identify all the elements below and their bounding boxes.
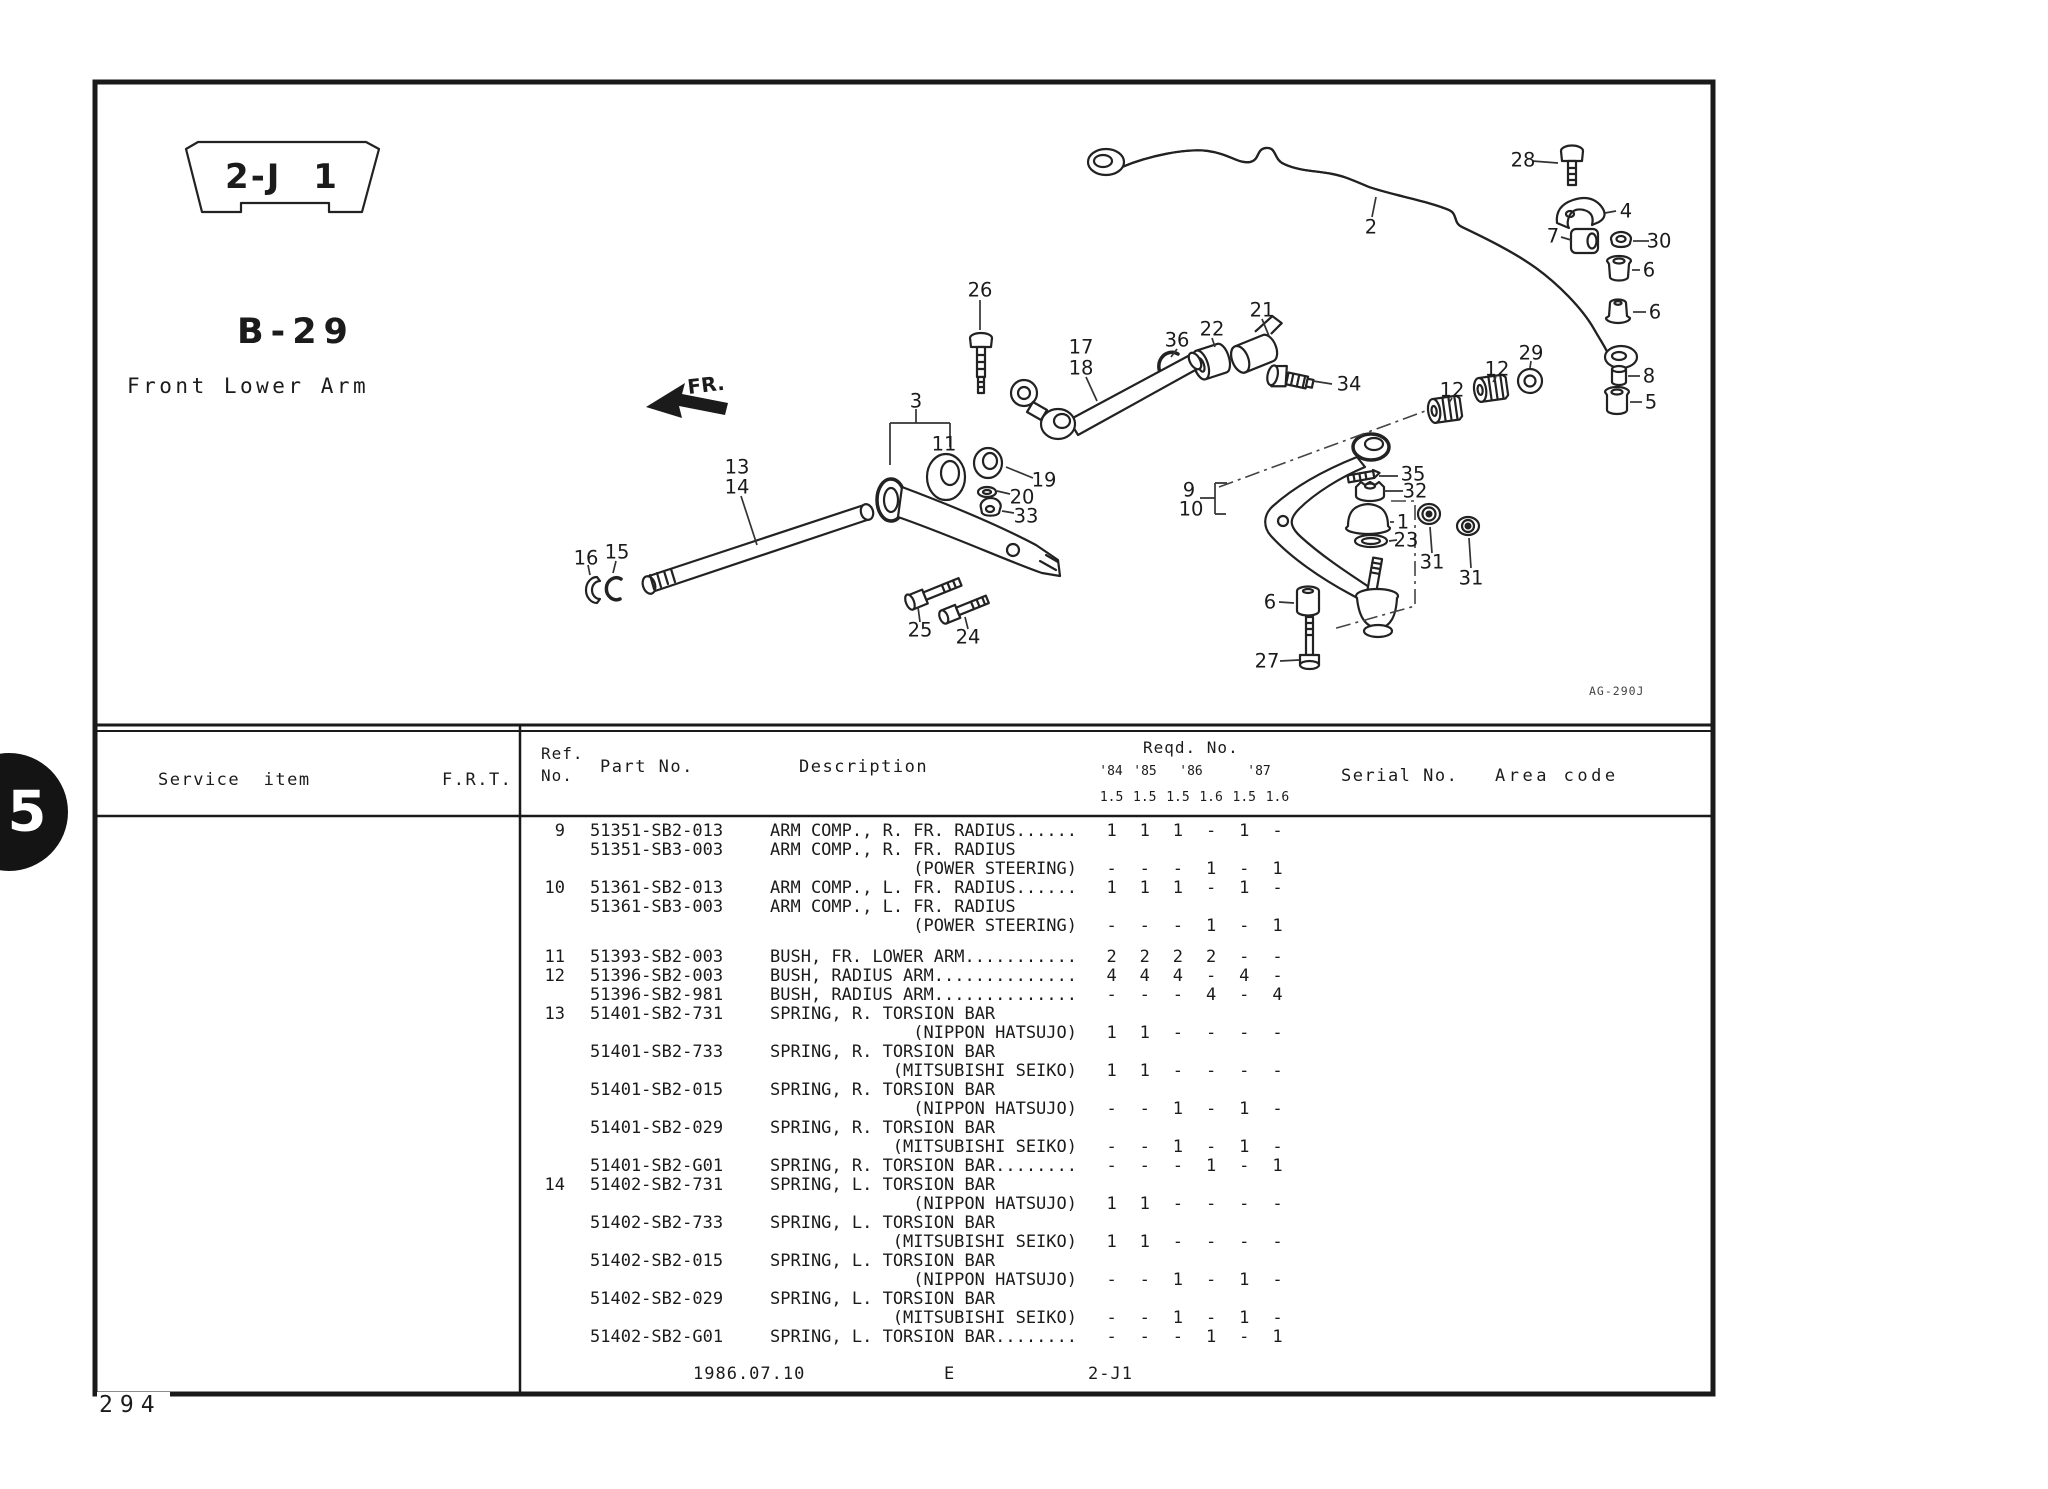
qty-cell: 1 [1161,1138,1194,1157]
lower-arm-right-drawing [1265,434,1479,669]
qty-cell: - [1261,1195,1294,1214]
part-no-cell: 51361-SB3-003 [590,898,723,917]
qty-cell: 1 [1161,1309,1194,1328]
table-row: (MITSUBISHI SEIKO)--1-1- [0,1309,2048,1328]
qty-cells: --1-1- [1095,1100,1294,1119]
part-no-cell: 51401-SB2-029 [590,1119,723,1138]
part-callout-31: 31 [1459,567,1484,590]
part-callout-32: 32 [1403,480,1428,503]
qty-cell: - [1128,986,1161,1005]
part-callout-11: 11 [932,433,957,456]
qty-cell: - [1195,967,1228,986]
description-cell: BUSH, RADIUS ARM.............. [770,986,1077,1005]
table-row: 51396-SB2-981BUSH, RADIUS ARM...........… [0,986,2048,1005]
table-row: 51401-SB2-015SPRING, R. TORSION BAR [0,1081,2048,1100]
ref-no-cell: 12 [495,967,565,986]
qty-cell: - [1161,986,1194,1005]
qty-cells: 2222-- [1095,948,1294,967]
qty-cell: 4 [1261,986,1294,1005]
footer-edition-code: E [944,1364,955,1384]
description-cell: ARM COMP., R. FR. RADIUS...... [770,822,1077,841]
qty-cell: 2 [1128,948,1161,967]
engine-header: 1.5 [1161,790,1194,805]
qty-cell: 2 [1195,948,1228,967]
part-callout-33: 33 [1014,505,1039,528]
part-no-cell: 51402-SB2-731 [590,1176,723,1195]
part-callout-22: 22 [1200,318,1225,341]
year-header-87: '87 [1247,764,1270,779]
qty-cell: - [1261,1309,1294,1328]
part-no-cell: 51402-SB2-733 [590,1214,723,1233]
fr-direction-label: FR. [686,371,726,399]
part-no-cell: 51401-SB2-731 [590,1005,723,1024]
table-row: 1051361-SB2-013ARM COMP., L. FR. RADIUS.… [0,879,2048,898]
qty-cell: - [1195,1195,1228,1214]
part-callout-15: 15 [605,541,630,564]
col-header-area-code: Area code [1495,766,1619,786]
qty-cell: 1 [1228,1138,1261,1157]
part-callout-14: 14 [725,476,750,499]
table-row: 51402-SB2-G01SPRING, L. TORSION BAR.....… [0,1328,2048,1347]
qty-cell: 1 [1128,1024,1161,1043]
qty-cell: 1 [1128,1233,1161,1252]
part-callout-5: 5 [1645,391,1657,414]
col-header-serial-no: Serial No. [1341,766,1458,786]
year-header-84: '84 [1099,764,1122,779]
qty-cell: - [1195,1309,1228,1328]
qty-cell: - [1095,860,1128,879]
qty-cell: 1 [1095,879,1128,898]
part-no-cell: 51401-SB2-733 [590,1043,723,1062]
description-cell: (NIPPON HATSUJO) [770,1195,1077,1214]
part-callout-34: 34 [1337,373,1362,396]
qty-cell: - [1228,1328,1261,1347]
qty-cells: 11---- [1095,1062,1294,1081]
table-row: 51401-SB2-G01SPRING, R. TORSION BAR.....… [0,1157,2048,1176]
qty-cell: - [1095,1157,1128,1176]
description-cell: SPRING, R. TORSION BAR [770,1081,1077,1100]
engine-header: 1.5 [1128,790,1161,805]
qty-cells: ---1-1 [1095,1328,1294,1347]
qty-cell: - [1195,1233,1228,1252]
qty-cell: 1 [1228,879,1261,898]
qty-cell: 1 [1095,1195,1128,1214]
qty-cell: 1 [1195,1328,1228,1347]
section-badge-label: 2-J 1 [225,157,339,197]
part-callout-8: 8 [1643,365,1655,388]
qty-cell: 1 [1095,1233,1128,1252]
qty-cell: - [1195,822,1228,841]
part-callout-28: 28 [1511,149,1536,172]
part-no-cell: 51351-SB3-003 [590,841,723,860]
qty-cell: 1 [1095,822,1128,841]
part-no-cell: 51361-SB2-013 [590,879,723,898]
qty-cell: - [1128,1157,1161,1176]
page-number: 294 [97,1392,170,1418]
description-cell: (NIPPON HATSUJO) [770,1024,1077,1043]
qty-cells: 111-1- [1095,879,1294,898]
qty-cell: - [1261,967,1294,986]
description-cell: SPRING, R. TORSION BAR [770,1119,1077,1138]
qty-cell: 1 [1095,1062,1128,1081]
qty-cells: 111-1- [1095,822,1294,841]
qty-cell: - [1195,1138,1228,1157]
engine-header: 1.6 [1195,790,1228,805]
table-row: (NIPPON HATSUJO)--1-1- [0,1100,2048,1119]
part-no-cell: 51396-SB2-981 [590,986,723,1005]
table-row: 51361-SB3-003ARM COMP., L. FR. RADIUS [0,898,2048,917]
qty-cell: - [1195,1024,1228,1043]
qty-cell: - [1228,986,1261,1005]
stabilizer-mount-parts-drawing [1557,146,1631,415]
part-callout-18: 18 [1069,357,1094,380]
col-header-part-no: Part No. [600,757,694,777]
qty-cell: 4 [1195,986,1228,1005]
part-callout-10: 10 [1179,498,1204,521]
table-row: (MITSUBISHI SEIKO)--1-1- [0,1138,2048,1157]
qty-cell: - [1261,1138,1294,1157]
qty-cell: - [1195,879,1228,898]
qty-cells: ---1-1 [1095,917,1294,936]
description-cell: SPRING, L. TORSION BAR [770,1214,1077,1233]
qty-cell: - [1095,1271,1128,1290]
qty-cell: 1 [1128,1062,1161,1081]
part-callout-30: 30 [1647,230,1672,253]
qty-cell: 4 [1095,967,1128,986]
qty-cell: 1 [1128,879,1161,898]
table-row: (NIPPON HATSUJO)11---- [0,1195,2048,1214]
table-row: 51351-SB3-003ARM COMP., R. FR. RADIUS [0,841,2048,860]
qty-cell: - [1161,1195,1194,1214]
engine-header: 1.5 [1095,790,1128,805]
qty-cell: - [1095,1138,1128,1157]
part-callout-6: 6 [1643,259,1655,282]
qty-cell: - [1161,1157,1194,1176]
qty-cell: 1 [1261,1328,1294,1347]
description-cell: (POWER STEERING) [770,860,1077,879]
table-row: (MITSUBISHI SEIKO)11---- [0,1233,2048,1252]
qty-cell: 4 [1128,967,1161,986]
qty-cell: - [1228,1062,1261,1081]
engine-header: 1.5 [1228,790,1261,805]
ref-no-cell: 10 [495,879,565,898]
qty-cell: - [1228,1195,1261,1214]
qty-cell: - [1261,1024,1294,1043]
qty-cell: - [1128,1309,1161,1328]
part-callout-21: 21 [1250,299,1275,322]
description-cell: SPRING, R. TORSION BAR........ [770,1157,1077,1176]
part-callout-27: 27 [1255,650,1280,673]
part-callout-12: 12 [1440,379,1465,402]
description-cell: (MITSUBISHI SEIKO) [770,1062,1077,1081]
qty-cell: 1 [1128,1195,1161,1214]
radius-rod-right-drawing [1011,351,1204,439]
description-cell: (MITSUBISHI SEIKO) [770,1138,1077,1157]
part-callout-25: 25 [908,619,933,642]
qty-cell: - [1261,948,1294,967]
part-callout-26: 26 [968,279,993,302]
qty-cell: - [1095,1309,1128,1328]
description-cell: SPRING, L. TORSION BAR [770,1252,1077,1271]
part-no-cell: 51396-SB2-003 [590,967,723,986]
qty-cell: - [1195,1100,1228,1119]
qty-cell: 1 [1228,1271,1261,1290]
ref-no-cell: 14 [495,1176,565,1195]
part-callout-6: 6 [1264,591,1276,614]
description-cell: ARM COMP., R. FR. RADIUS [770,841,1077,860]
table-row: (NIPPON HATSUJO)--1-1- [0,1271,2048,1290]
part-callout-16: 16 [574,547,599,570]
table-row: (NIPPON HATSUJO)11---- [0,1024,2048,1043]
part-no-cell: 51402-SB2-G01 [590,1328,723,1347]
part-callout-31: 31 [1420,551,1445,574]
part-callout-6: 6 [1649,301,1661,324]
year-header-86: '86 [1179,764,1202,779]
section-tab-number: 5 [8,780,47,845]
qty-cell: 1 [1195,1157,1228,1176]
qty-cell: - [1095,1328,1128,1347]
qty-cell: - [1095,1100,1128,1119]
qty-cells: 444-4- [1095,967,1294,986]
col-header-reqd-no: Reqd. No. [1143,738,1239,757]
footer-date: 1986.07.10 [693,1364,805,1384]
description-cell: SPRING, R. TORSION BAR [770,1043,1077,1062]
qty-cell: - [1128,917,1161,936]
table-row: 51402-SB2-733SPRING, L. TORSION BAR [0,1214,2048,1233]
qty-cell: - [1128,1100,1161,1119]
qty-cell: - [1195,1271,1228,1290]
table-row: 1451402-SB2-731SPRING, L. TORSION BAR [0,1176,2048,1195]
part-no-cell: 51351-SB2-013 [590,822,723,841]
qty-cells: 11---- [1095,1195,1294,1214]
drawing-reference: AG-290J [1589,684,1644,698]
qty-cell: - [1261,879,1294,898]
qty-cell: - [1161,1328,1194,1347]
qty-cell: - [1128,1271,1161,1290]
qty-cells: --1-1- [1095,1271,1294,1290]
ref-no-cell: 13 [495,1005,565,1024]
part-callout-17: 17 [1069,336,1094,359]
qty-cell: - [1095,986,1128,1005]
table-row: 1151393-SB2-003BUSH, FR. LOWER ARM......… [0,948,2048,967]
qty-cell: 4 [1228,967,1261,986]
qty-cell: - [1228,1233,1261,1252]
qty-cell: 1 [1195,860,1228,879]
catalog-code: B-29 [237,312,355,352]
qty-cell: 1 [1228,1100,1261,1119]
qty-cell: 1 [1261,860,1294,879]
qty-cells: ---1-1 [1095,1157,1294,1176]
part-callout-3: 3 [910,390,922,413]
qty-cell: - [1161,860,1194,879]
qty-cell: - [1128,860,1161,879]
part-callout-29: 29 [1519,342,1544,365]
year-header-85: '85 [1133,764,1156,779]
col-header-frt: F.R.T. [442,770,512,790]
table-row: 51402-SB2-015SPRING, L. TORSION BAR [0,1252,2048,1271]
qty-cell: 1 [1228,822,1261,841]
part-callout-23: 23 [1394,529,1419,552]
qty-cell: - [1128,1328,1161,1347]
qty-cells: --1-1- [1095,1309,1294,1328]
qty-cell: 1 [1095,1024,1128,1043]
qty-cell: 1 [1161,879,1194,898]
qty-cell: - [1195,1062,1228,1081]
part-callout-24: 24 [956,626,981,649]
page-title: Front Lower Arm [127,374,369,398]
qty-cell: - [1128,1138,1161,1157]
radius-arm-holder-drawing [1159,314,1315,395]
ref-no-cell: 11 [495,948,565,967]
bolt-26-drawing [970,333,992,393]
qty-cell: - [1261,1100,1294,1119]
table-row: (POWER STEERING)---1-1 [0,860,2048,879]
part-no-cell: 51393-SB2-003 [590,948,723,967]
table-row: 51402-SB2-029SPRING, L. TORSION BAR [0,1290,2048,1309]
qty-cells: ---4-4 [1095,986,1294,1005]
qty-cell: - [1161,1062,1194,1081]
engine-header: 1.6 [1261,790,1294,805]
description-cell: SPRING, L. TORSION BAR........ [770,1328,1077,1347]
qty-cell: - [1261,1062,1294,1081]
qty-cell: 1 [1228,1309,1261,1328]
ref-no-cell: 9 [495,822,565,841]
description-cell: SPRING, L. TORSION BAR [770,1290,1077,1309]
part-callout-2: 2 [1365,216,1377,239]
part-callout-19: 19 [1032,469,1057,492]
description-cell: (NIPPON HATSUJO) [770,1271,1077,1290]
description-cell: SPRING, L. TORSION BAR [770,1176,1077,1195]
footer-section-code: 2-J1 [1088,1364,1133,1384]
qty-cell: - [1228,917,1261,936]
qty-cell: - [1228,860,1261,879]
part-no-cell: 51402-SB2-015 [590,1252,723,1271]
table-row: (POWER STEERING)---1-1 [0,917,2048,936]
col-header-ref: Ref. [541,744,584,763]
table-row: (MITSUBISHI SEIKO)11---- [0,1062,2048,1081]
part-callout-4: 4 [1620,200,1632,223]
qty-cell: 1 [1195,917,1228,936]
qty-cell: 1 [1261,917,1294,936]
qty-cell: - [1228,1024,1261,1043]
qty-cell: 2 [1095,948,1128,967]
qty-cell: - [1161,917,1194,936]
part-no-cell: 51402-SB2-029 [590,1290,723,1309]
description-cell: (NIPPON HATSUJO) [770,1100,1077,1119]
qty-cell: 1 [1161,1271,1194,1290]
qty-cell: - [1228,948,1261,967]
qty-cell: 2 [1161,948,1194,967]
description-cell: (MITSUBISHI SEIKO) [770,1233,1077,1252]
qty-cell: - [1161,1024,1194,1043]
part-callout-7: 7 [1547,225,1559,248]
qty-cell: 4 [1161,967,1194,986]
catalog-page: .s{stroke:#222;fill:none;stroke-width:2.… [0,0,2048,1489]
description-cell: ARM COMP., L. FR. RADIUS [770,898,1077,917]
part-no-cell: 51401-SB2-015 [590,1081,723,1100]
description-cell: BUSH, RADIUS ARM.............. [770,967,1077,986]
description-cell: (POWER STEERING) [770,917,1077,936]
table-row: 51401-SB2-733SPRING, R. TORSION BAR [0,1043,2048,1062]
qty-cells: ---1-1 [1095,860,1294,879]
qty-cell: 1 [1161,1100,1194,1119]
table-row: 951351-SB2-013ARM COMP., R. FR. RADIUS..… [0,822,2048,841]
qty-cell: - [1261,822,1294,841]
qty-cells: 11---- [1095,1024,1294,1043]
description-cell: (MITSUBISHI SEIKO) [770,1309,1077,1328]
table-row: 1351401-SB2-731SPRING, R. TORSION BAR [0,1005,2048,1024]
description-cell: ARM COMP., L. FR. RADIUS...... [770,879,1077,898]
qty-cell: - [1261,1271,1294,1290]
part-no-cell: 51401-SB2-G01 [590,1157,723,1176]
part-callout-12: 12 [1485,358,1510,381]
description-cell: SPRING, R. TORSION BAR [770,1005,1077,1024]
col-header-ref-no: No. [541,766,573,785]
qty-cells: --1-1- [1095,1138,1294,1157]
table-row: 51401-SB2-029SPRING, R. TORSION BAR [0,1119,2048,1138]
qty-cell: 1 [1128,822,1161,841]
qty-cells: 11---- [1095,1233,1294,1252]
table-row: 1251396-SB2-003BUSH, RADIUS ARM.........… [0,967,2048,986]
description-cell: BUSH, FR. LOWER ARM........... [770,948,1077,967]
qty-cell: 1 [1261,1157,1294,1176]
qty-cell: 1 [1161,822,1194,841]
qty-cell: - [1228,1157,1261,1176]
col-header-service-item: Service item [158,770,311,790]
engine-size-header-row: 1.5 1.5 1.5 1.6 1.5 1.6 [1095,790,1294,805]
col-header-description: Description [799,757,928,777]
qty-cell: - [1261,1233,1294,1252]
qty-cell: - [1161,1233,1194,1252]
part-callout-36: 36 [1165,329,1190,352]
qty-cell: - [1095,917,1128,936]
